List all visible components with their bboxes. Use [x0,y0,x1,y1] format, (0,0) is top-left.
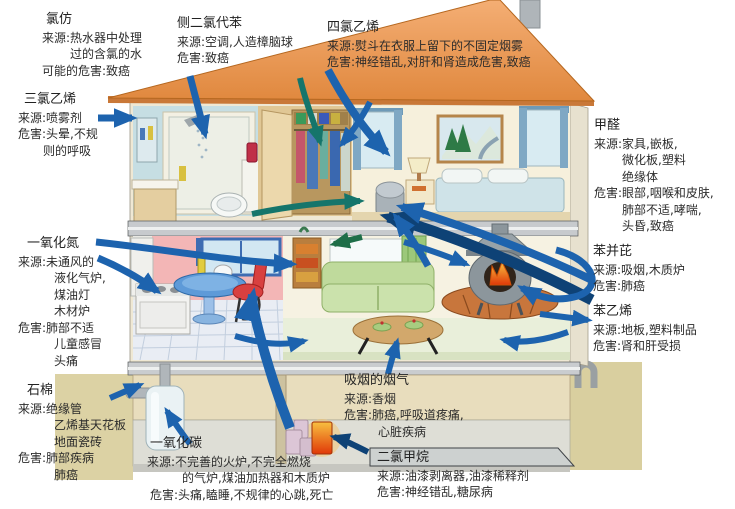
bottle [179,166,186,181]
pollutant-detail-line: 来源:家具,嵌板, [594,136,714,153]
pollutant-detail-line: 来源:绝缘管 [18,401,126,418]
pollutant-name: 四氯乙烯 [327,20,531,37]
pollutant-name: 吸烟的烟气 [344,373,464,390]
label-p-dichlorobenzene: 侧二氯代苯 来源:空调,人造樟脑球 危害:致癌 [177,16,293,67]
pollutant-name: 二氯甲烷 [377,450,529,467]
pollutant-detail-line: 来源:未通风的 [18,254,106,271]
closet-door [262,110,292,220]
pollutant-detail-line: 危害:致癌 [177,50,293,67]
label-dichloromethane: 二氯甲烷 来源:油漆剥离器,油漆稀释剂 危害:神经错乱,糖尿病 [377,450,529,501]
lamp-icon [408,158,430,173]
pollutant-detail-line: 危害:肺癌,呼吸道疼痛, [344,407,464,424]
pollutant-detail-line: 肺癌 [54,467,126,484]
label-trichloroethylene: 三氯乙烯 来源:喷雾剂 危害:头晕,不规 则的呼吸 [18,92,98,159]
pollutant-detail-line: 心脏疾病 [378,424,464,441]
pillow [442,169,482,183]
pollutant-detail-line: 危害:头痛,瞌睡,不规律的心跳,死亡 [150,487,334,504]
sink-counter [132,180,178,189]
pollutant-name: 石棉 [27,383,126,400]
pollutant-detail-line: 危害:神经错乱,对肝和肾造成危害,致癌 [327,54,531,71]
pollutant-detail-line: 乙烯基天花板 [54,417,126,434]
pollutant-detail-line: 来源:熨斗在衣服上留下的不固定烟雾 [327,38,531,55]
label-benzopyrene: 苯并芘 来源:吸烟,木质炉 危害:肺癌 [593,244,685,295]
pillow [488,169,528,183]
couch [322,262,434,312]
pollutant-name: 一氧化氮 [27,236,106,253]
pollutant-detail-line: 煤油灯 [54,287,106,304]
label-tobacco-smoke: 吸烟的烟气 来源:香烟 危害:肺癌,呼吸道疼痛, 心脏疾病 [344,373,464,440]
pollutant-detail-line: 可能的危害:致癌 [42,63,142,80]
pollutant-name: 三氯乙烯 [24,92,98,109]
pollutant-detail-line: 绝缘体 [622,169,714,186]
pollutant-detail-line: 来源:油漆剥离器,油漆稀释剂 [377,468,529,485]
pollutant-detail-line: 危害:肺部不适 [18,320,106,337]
pollutant-detail-line: 过的含氯的水 [70,46,142,63]
label-tetrachloroethylene: 四氯乙烯 来源:熨斗在衣服上留下的不固定烟雾 危害:神经错乱,对肝和肾造成危害,… [327,20,531,71]
bathroom [132,106,260,227]
aerosol-can-icon [247,143,257,162]
bottle [198,258,205,274]
pollutant-detail-line: 肺部不适,哮喘, [622,202,714,219]
hanging-clothes [296,131,305,183]
pollutant-detail-line: 危害:肺癌 [593,278,685,295]
label-styrene: 苯乙烯 来源:地板,塑料制品 危害:肾和肝受损 [593,304,697,355]
pollutant-detail-line: 危害:肾和肝受损 [593,338,697,355]
pollutant-detail-line: 来源:地板,塑料制品 [593,322,697,339]
pollutant-detail-line: 木材炉 [54,303,106,320]
label-asbestos: 石棉 来源:绝缘管 乙烯基天花板 地面瓷砖 危害:肺部疾病 肺癌 [18,383,126,483]
pollutant-detail-line: 地面瓷砖 [54,434,126,451]
nightstand [406,180,434,204]
pollutant-name: 氯仿 [46,12,142,29]
landscape-picture [438,116,502,162]
pollutant-detail-line: 头痛 [54,353,106,370]
pollutant-name: 甲醛 [594,118,714,135]
pollutant-detail-line: 来源:不完善的火炉,不完全燃烧 [147,454,334,471]
pollutant-detail-line: 危害:神经错乱,糖尿病 [377,484,529,501]
indoor-air-pollution-diagram: 氯仿 来源:热水器中处理 过的含氯的水 可能的危害:致癌 侧二氯代苯 来源:空调… [0,0,735,509]
pollutant-detail-line: 危害:眼部,咽喉和皮肤, [594,185,714,202]
pollutant-detail-line: 儿童感冒 [54,336,106,353]
label-nitric-oxide: 一氧化氮 来源:未通风的 液化气炉, 煤油灯 木材炉 危害:肺部不适 儿童感冒 … [18,236,106,369]
pollutant-detail-line: 危害:肺部疾病 [18,450,126,467]
pollutant-detail-line: 微化板,塑料 [622,152,714,169]
label-carbon-monoxide: 一氧化碳 来源:不完善的火炉,不完全燃烧 的气炉,煤油加热器和木质炉 危害:头痛… [147,436,334,503]
pollutant-name: 苯乙烯 [593,304,697,321]
pollutant-detail-line: 来源:香烟 [344,391,464,408]
pollutant-detail-line: 头昏,致癌 [622,218,714,235]
pollutant-name: 苯并芘 [593,244,685,261]
bedroom [352,106,570,221]
label-chloroform: 氯仿 来源:热水器中处理 过的含氯的水 可能的危害:致癌 [42,12,142,79]
humidifier [376,182,404,216]
pollutant-detail-line: 则的呼吸 [43,143,98,160]
pollutant-detail-line: 的气炉,煤油加热器和木质炉 [182,470,334,487]
pollutant-detail-line: 来源:吸烟,木质炉 [593,262,685,279]
label-formaldehyde: 甲醛 来源:家具,嵌板, 微化板,塑料 绝缘体 危害:眼部,咽喉和皮肤, 肺部不… [594,118,714,235]
pollutant-name: 一氧化碳 [150,436,334,453]
pollutant-detail-line: 危害:头晕,不规 [18,126,98,143]
pollutant-detail-line: 液化气炉, [54,270,106,287]
pollutant-detail-line: 来源:热水器中处理 [42,30,142,47]
pollutant-detail-line: 来源:喷雾剂 [18,110,98,127]
pollutant-name: 侧二氯代苯 [177,16,293,33]
pollutant-detail-line: 来源:空调,人造樟脑球 [177,34,293,51]
